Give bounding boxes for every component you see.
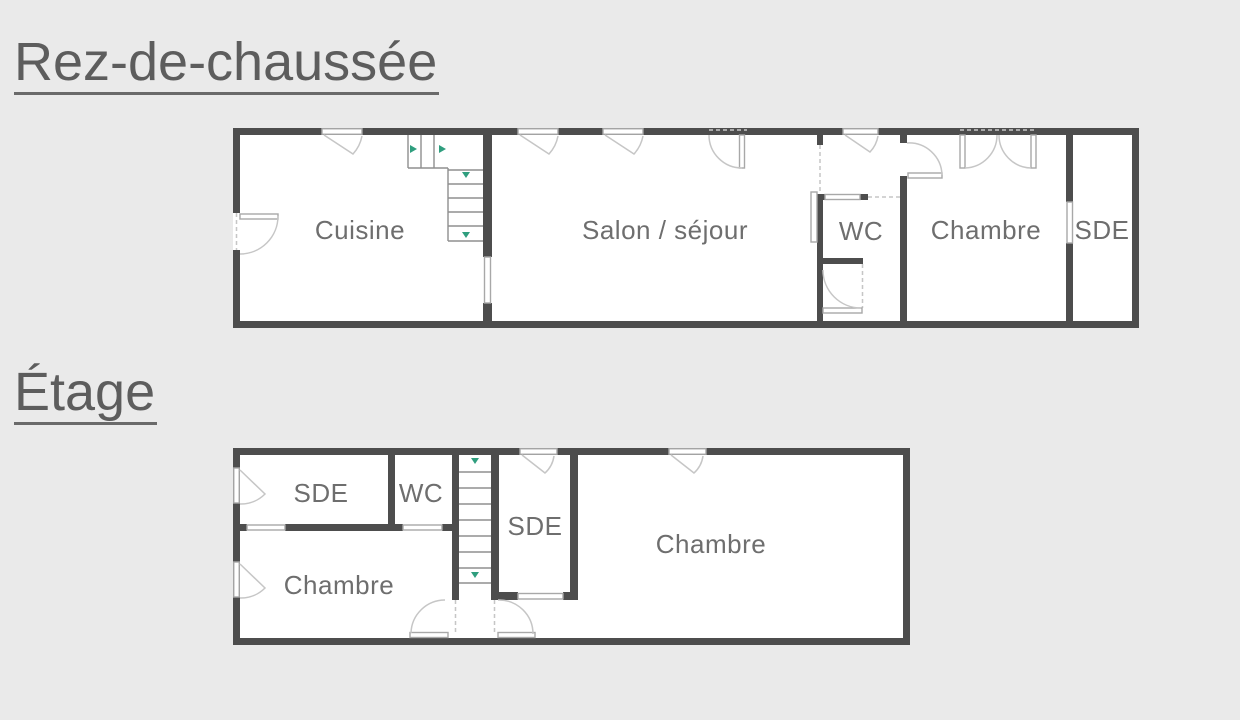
room-label-wc: WC <box>839 216 883 246</box>
floor-plan-upper: SDE WC SDE Chambre Chambre <box>233 448 910 645</box>
room-label-cuisine: Cuisine <box>315 215 405 245</box>
window <box>520 449 557 455</box>
window-sill <box>825 195 860 200</box>
floor-title-ground: Rez-de-chaussée <box>14 34 439 95</box>
floorplan-page: Rez-de-chaussée <box>0 0 1240 720</box>
room-label-chambre-2: Chambre <box>656 529 766 559</box>
door-leaf <box>410 633 448 638</box>
room-label-wc: WC <box>399 478 443 508</box>
door-leaf <box>908 173 942 178</box>
door-leaf <box>498 633 535 638</box>
window <box>322 129 362 135</box>
room-label-salon-sejour: Salon / séjour <box>582 215 748 245</box>
door-sill <box>247 525 285 530</box>
window <box>603 129 643 135</box>
door-leaf <box>240 214 278 219</box>
window <box>234 562 240 597</box>
room-label-chambre-1: Chambre <box>284 570 394 600</box>
floor-title-upper: Étage <box>14 364 157 425</box>
window <box>518 129 558 135</box>
window <box>843 129 878 135</box>
door-sill <box>403 525 442 530</box>
door-leaf <box>485 257 491 303</box>
door-leaf <box>823 308 862 313</box>
door-leaf <box>740 135 745 168</box>
glazed-panel <box>811 192 817 242</box>
room-label-sde: SDE <box>1075 215 1130 245</box>
window <box>234 468 240 503</box>
floor-plan-ground: Cuisine Salon / séjour WC Chambre SDE <box>233 128 1139 328</box>
door-leaf <box>1031 135 1036 168</box>
room-label-sde-2: SDE <box>508 511 563 541</box>
room-label-chambre: Chambre <box>931 215 1041 245</box>
room-label-sde-1: SDE <box>294 478 349 508</box>
door-sill <box>518 594 563 600</box>
door-leaf <box>1067 202 1073 243</box>
window <box>669 449 706 455</box>
door-leaf <box>960 135 965 168</box>
